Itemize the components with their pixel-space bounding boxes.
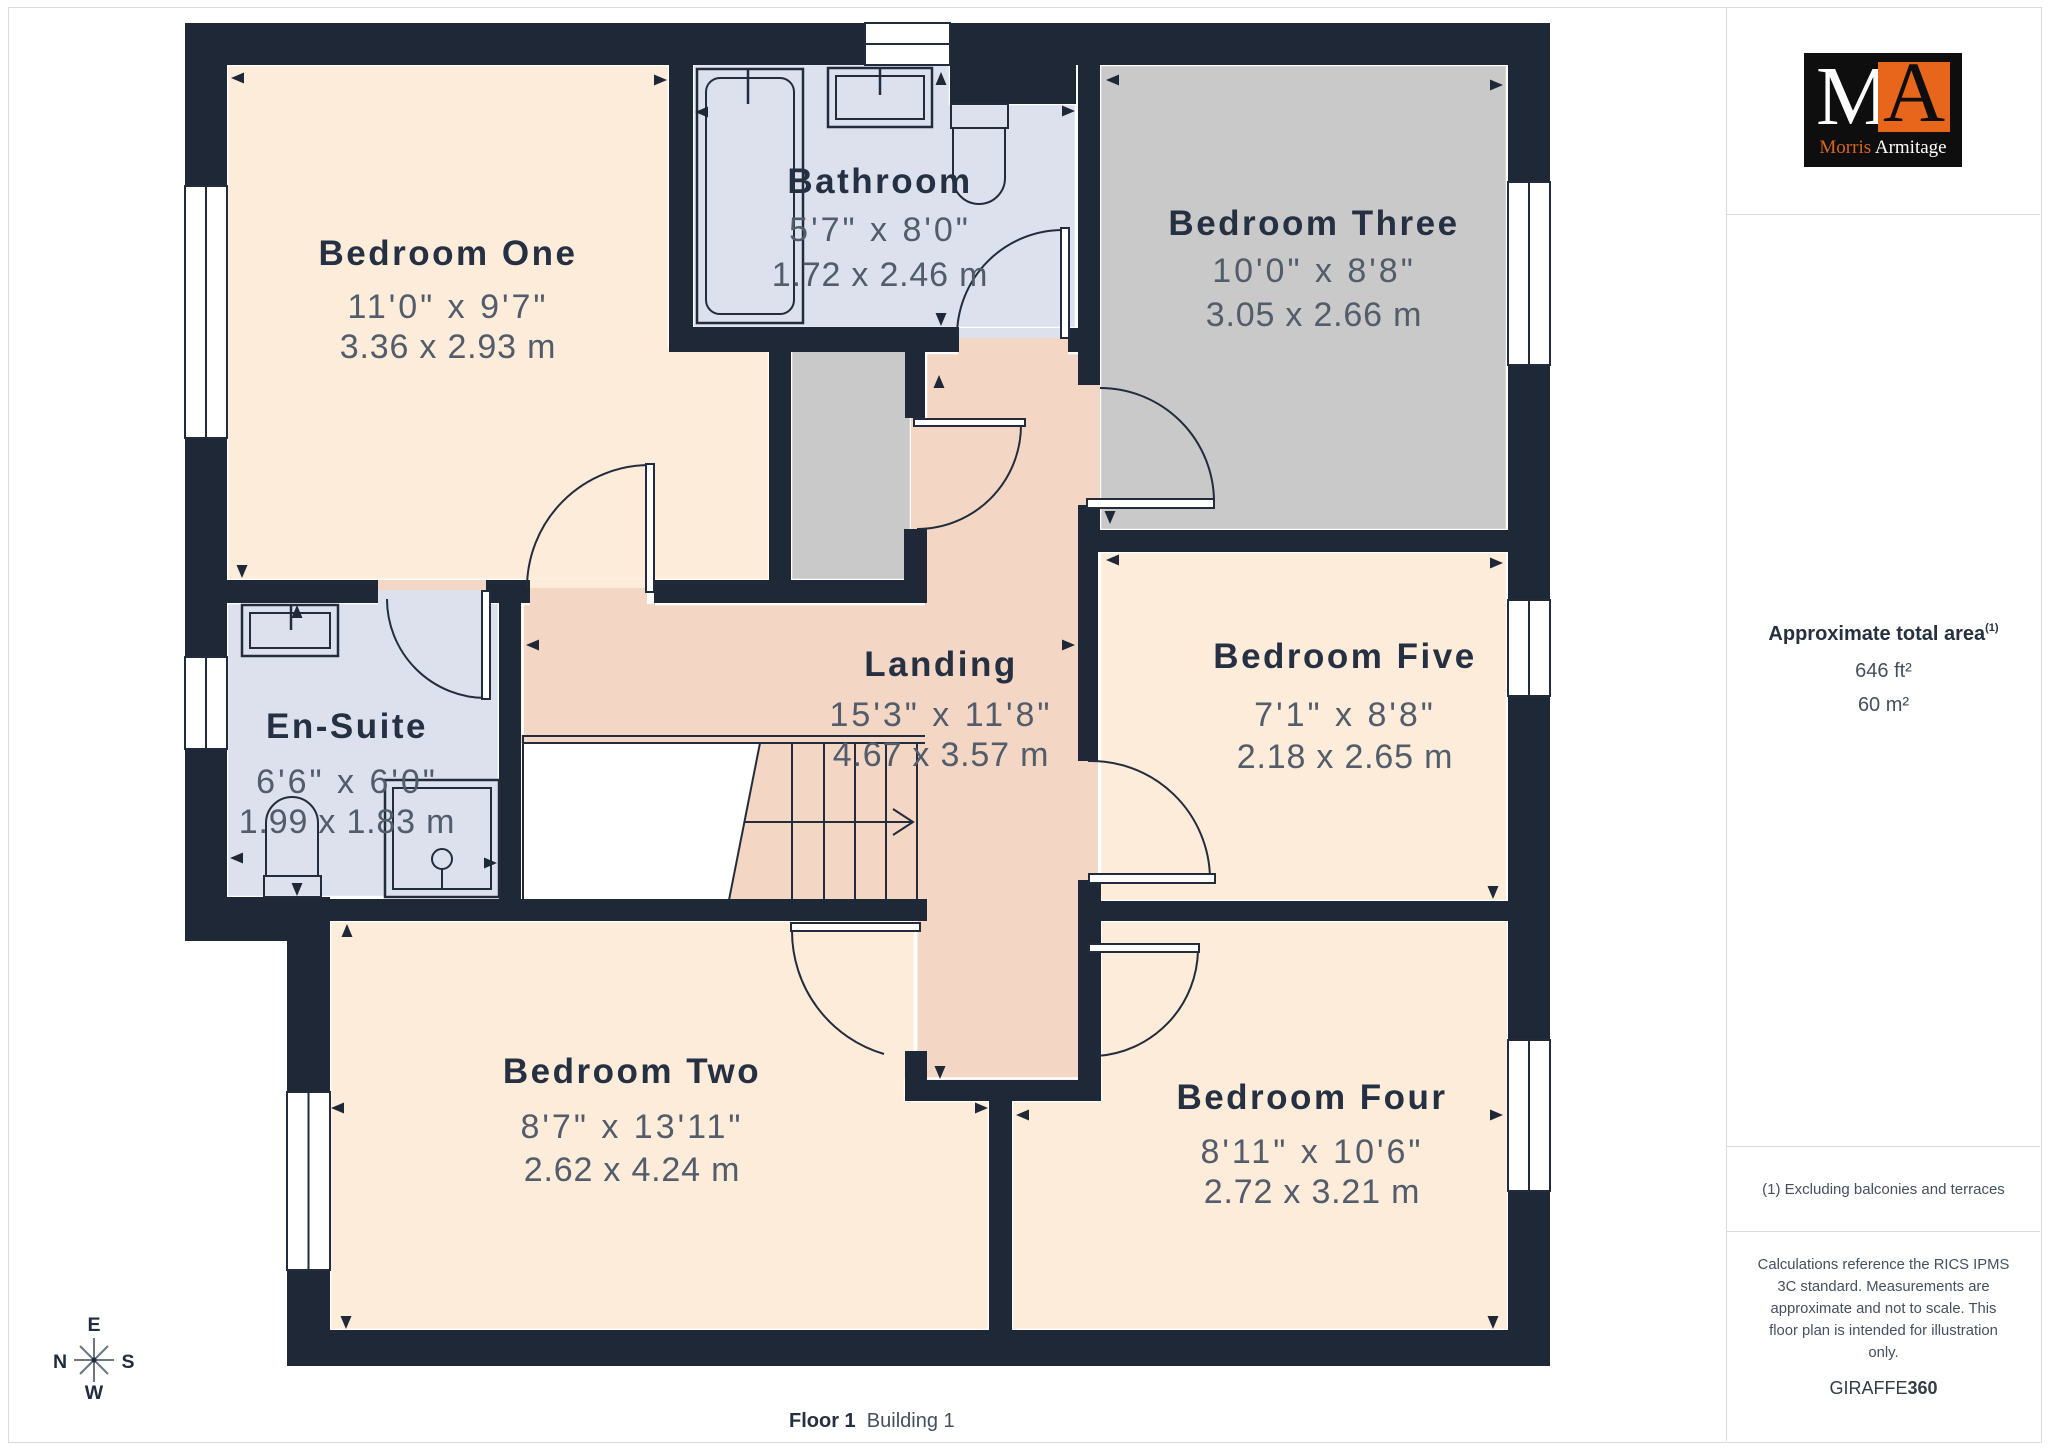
svg-text:2.62 x 4.24 m: 2.62 x 4.24 m [524,1151,740,1189]
svg-text:W: W [85,1382,104,1404]
svg-text:Bedroom Two: Bedroom Two [503,1052,761,1091]
svg-text:15'3" x 11'8": 15'3" x 11'8" [830,696,1053,734]
svg-text:Bedroom Four: Bedroom Four [1176,1078,1447,1117]
svg-text:2.72 x 3.21 m: 2.72 x 3.21 m [1204,1173,1420,1211]
svg-text:4.67 x 3.57 m: 4.67 x 3.57 m [833,736,1049,774]
svg-text:En-Suite: En-Suite [266,707,428,746]
svg-text:Bedroom One: Bedroom One [319,234,578,273]
svg-text:Landing: Landing [864,645,1018,684]
svg-text:2.18 x 2.65 m: 2.18 x 2.65 m [1237,738,1453,776]
svg-text:7'1" x 8'8": 7'1" x 8'8" [1254,696,1436,734]
svg-text:8'7" x 13'11": 8'7" x 13'11" [521,1108,744,1146]
svg-text:S: S [121,1351,134,1373]
svg-text:3.36 x 2.93 m: 3.36 x 2.93 m [340,328,556,366]
svg-text:10'0" x 8'8": 10'0" x 8'8" [1212,252,1416,290]
svg-text:Bedroom Five: Bedroom Five [1213,637,1476,676]
svg-text:11'0" x 9'7": 11'0" x 9'7" [347,288,548,326]
svg-text:1.99 x 1.83 m: 1.99 x 1.83 m [239,803,455,841]
svg-text:Bedroom Three: Bedroom Three [1168,204,1459,243]
svg-text:6'6" x 6'0": 6'6" x 6'0" [256,763,438,801]
svg-text:Bathroom: Bathroom [787,162,972,201]
svg-text:N: N [53,1351,67,1373]
svg-text:5'7" x 8'0": 5'7" x 8'0" [789,211,971,249]
svg-text:1.72 x 2.46 m: 1.72 x 2.46 m [772,256,988,294]
svg-text:3.05 x 2.66 m: 3.05 x 2.66 m [1206,296,1422,334]
svg-text:8'11" x 10'6": 8'11" x 10'6" [1201,1133,1424,1171]
svg-text:E: E [87,1314,100,1336]
